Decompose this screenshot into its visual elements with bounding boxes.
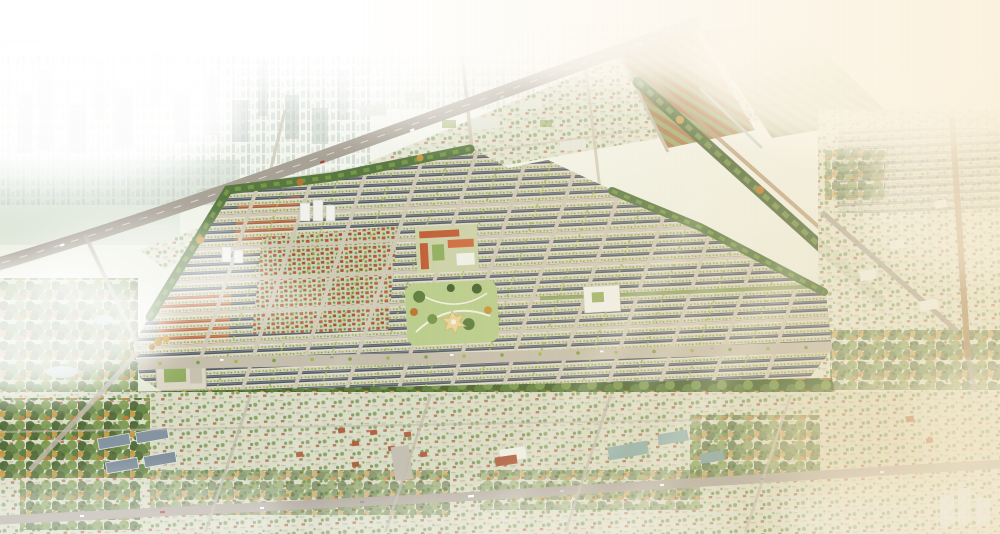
tower [958, 488, 970, 524]
aerial-masterplan-render [0, 0, 1000, 534]
courtyard-green [442, 120, 456, 128]
tower-block [175, 95, 189, 143]
median-tree [158, 362, 162, 366]
median-tree [196, 361, 200, 365]
median-tree [538, 352, 542, 356]
tower-block [70, 105, 86, 153]
tower-block [95, 60, 105, 120]
civic-building [190, 367, 203, 383]
vehicle [360, 501, 364, 503]
tower-block [285, 95, 299, 139]
median-tree [804, 346, 808, 350]
tower [326, 205, 335, 221]
autumn-tree [676, 116, 684, 124]
median-tree [690, 349, 694, 353]
vehicle [80, 515, 84, 517]
white-school-courtyard [592, 292, 605, 303]
tower-block [338, 70, 348, 120]
tower [976, 498, 990, 526]
gateway-gold-tree [149, 344, 155, 350]
school-building [448, 239, 474, 248]
vehicle [330, 357, 334, 359]
south-trees [690, 415, 820, 480]
tower-block [312, 108, 328, 144]
median-tree [310, 358, 314, 362]
median-tree [272, 359, 276, 363]
median-tree [462, 354, 466, 358]
tower-block [115, 88, 133, 148]
red-villa [352, 461, 360, 467]
median-tree [766, 347, 770, 351]
vehicle [600, 351, 604, 353]
campus-building [360, 104, 387, 116]
tower-block [232, 100, 248, 142]
tower-block [205, 75, 217, 135]
median-tree [614, 351, 618, 355]
median-tree [386, 356, 390, 360]
tower [940, 495, 954, 525]
median-tree [424, 355, 428, 359]
red-villa [926, 437, 934, 443]
median-tree [652, 350, 656, 354]
vehicle [760, 478, 764, 480]
east-trees [825, 150, 885, 200]
civic-courtyard [164, 368, 186, 383]
west-park [0, 278, 138, 403]
red-villa [404, 431, 412, 437]
vehicle [710, 348, 714, 350]
autumn-tree [196, 236, 204, 244]
school-building [420, 243, 429, 269]
vehicle [880, 471, 884, 473]
tower-block [18, 95, 32, 153]
tower-block [40, 70, 52, 150]
red-villa [296, 451, 304, 457]
campus-building [470, 117, 501, 130]
red-villa [338, 427, 346, 433]
vehicle [468, 495, 474, 498]
median-tree [234, 360, 238, 364]
gateway-gold-tree [154, 338, 162, 346]
tower-block [150, 50, 162, 105]
red-villa [352, 440, 360, 446]
vehicle [160, 511, 165, 513]
median-tree [576, 351, 580, 355]
tower [222, 247, 231, 262]
median-tree [500, 353, 504, 357]
tower [313, 200, 323, 221]
park-trees [0, 278, 138, 403]
school-hall [456, 253, 475, 266]
central-park [404, 280, 499, 347]
vehicle [260, 507, 264, 509]
autumn-tree [756, 186, 764, 194]
vehicle [660, 484, 664, 486]
school-courtyard [432, 244, 445, 261]
pond [94, 315, 114, 325]
autumn-tree [417, 155, 424, 162]
gateway-gold-tree [163, 336, 170, 343]
courtyard-green [540, 120, 552, 127]
vehicle [560, 490, 564, 492]
tower-block [258, 60, 268, 116]
school-campus [415, 224, 479, 273]
campus-building [405, 91, 425, 102]
median-tree [728, 348, 732, 352]
campus-building [520, 99, 542, 109]
red-villa [370, 429, 378, 435]
vehicle [450, 354, 454, 356]
red-villa [906, 415, 915, 422]
median-tree [348, 357, 352, 361]
tower [300, 203, 310, 221]
vehicle [220, 359, 224, 361]
scene-canvas [0, 0, 1000, 534]
tower [234, 250, 243, 263]
autumn-tree [297, 179, 304, 186]
red-villa [420, 451, 428, 457]
pond [46, 366, 78, 378]
